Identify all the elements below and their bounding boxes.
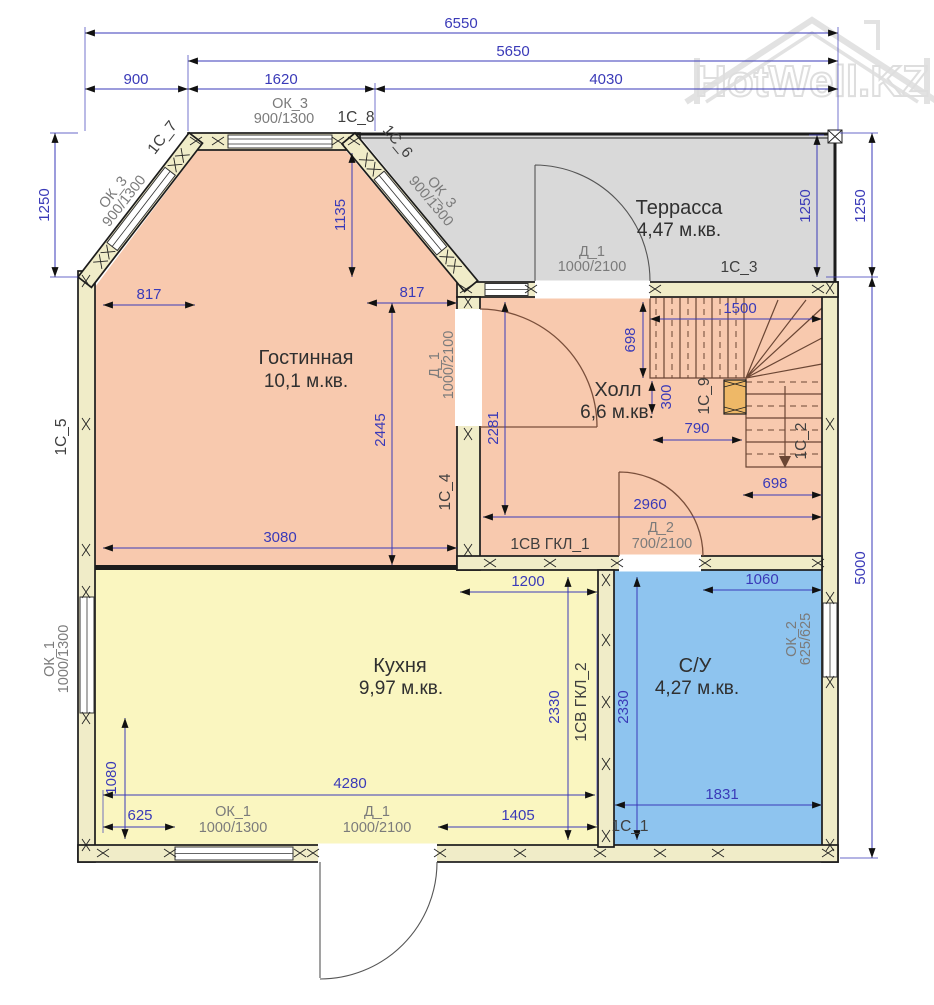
svg-text:1000/1300: 1000/1300 [56,625,72,694]
label-bath-area: 4,27 м.кв. [655,678,739,699]
dim-label-1831: 1831 [705,786,738,803]
watermark-text: HotWell.KZ [695,57,929,106]
wall-right [822,282,838,862]
label-d1-bottom-size: 1000/2100 [343,820,412,836]
label-kitchen-area: 9,97 м.кв. [359,678,443,699]
dim-label-1135: 1135 [332,199,349,231]
dim-label-2281: 2281 [485,411,502,444]
door-gap-terrace [535,281,650,299]
label-terrace-name: Террасса [636,197,724,219]
dim-label-300: 300 [658,384,675,409]
partition-kitchen-bath [598,570,614,847]
label-terrace-area: 4,47 м.кв. [637,220,721,241]
window-bottom-ok1 [175,847,293,860]
label-ok3-top-tag: ОК_3 [272,96,308,112]
label-panel-1c5: 1С_5 [53,418,70,455]
label-ok1-bottom-size: 1000/1300 [199,820,268,836]
label-panel-1c2: 1С_2 [793,422,810,459]
label-ok3-top-size: 900/1300 [254,111,314,127]
dim-label-698-bottom: 698 [762,475,787,492]
terrace-corner-post [828,130,842,143]
label-living-area: 10,1 м.кв. [264,371,348,392]
label-living-name: Гостинная [259,347,354,369]
label-ok1-left: ОК_1 1000/1300 [42,625,72,694]
dim-label-1620: 1620 [264,71,297,88]
label-ok1-bottom-tag: ОК_1 [215,804,251,820]
dim-label-6550: 6550 [444,15,477,32]
label-d1-terrace-size: 1000/2100 [558,259,627,275]
label-panel-gkl1: 1СВ ГКЛ_1 [510,536,589,553]
window-terrace-small [485,284,528,296]
door-gap-living-hall [455,309,482,426]
svg-text:625/625: 625/625 [798,613,814,665]
label-d1-bottom-tag: Д_1 [364,804,390,820]
dim-label-4280: 4280 [333,775,366,792]
label-hall-name: Холл [594,379,641,401]
label-panel-1c9: 1С_9 [696,377,713,414]
dim-label-1250-right: 1250 [852,189,869,222]
stair-newel-post [724,380,746,414]
dim-label-2330-kitchen: 2330 [546,690,563,723]
kitchen-floor [95,568,598,847]
label-kitchen-name: Кухня [373,655,427,677]
dim-label-3080: 3080 [263,529,296,546]
label-panel-1c3: 1С_3 [720,259,757,276]
floor-plan-drawing: HotWell.KZ [0,0,934,1000]
label-bath-name: С/У [679,655,712,677]
window-left-ok1 [80,597,94,713]
label-panel-1c1: 1С_1 [611,818,648,835]
door-swing-entry [320,862,437,979]
dim-label-4030: 4030 [589,71,622,88]
dim-label-1250-left: 1250 [36,188,53,221]
dim-label-698-top: 698 [622,327,639,352]
floor-plan-page: HotWell.KZ [0,0,934,1000]
partition-living-kitchen [95,565,457,570]
wall-left [78,271,95,862]
dim-label-5000: 5000 [852,551,869,584]
dim-label-1200: 1200 [511,573,544,590]
label-d1-terrace-tag: Д_1 [579,244,605,260]
watermark-chimney-icon [864,22,878,50]
dim-label-2445: 2445 [372,413,389,446]
door-gap-hall-d2 [619,555,701,572]
label-d2-tag: Д_2 [648,520,674,536]
dim-label-790: 790 [684,420,709,437]
label-d2-size: 700/2100 [632,536,692,552]
dim-label-625: 625 [127,807,152,824]
dim-label-2330-bath: 2330 [615,690,632,723]
label-panel-gkl2: 1СВ ГКЛ_2 [573,662,590,741]
dim-label-2960: 2960 [633,496,666,513]
dim-label-1500: 1500 [723,300,756,317]
dim-label-1250-terrace: 1250 [797,189,814,222]
dim-label-1405: 1405 [501,807,534,824]
door-gap-entry [318,844,437,864]
label-panel-1c4: 1С_4 [437,473,454,510]
dim-label-817-right: 817 [399,284,424,301]
label-panel-1c8: 1С_8 [337,109,374,126]
window-right-ok2 [823,603,837,677]
dim-label-5650: 5650 [496,43,529,60]
dim-label-1060: 1060 [745,571,778,588]
svg-text:1000/2100: 1000/2100 [441,331,457,400]
dim-label-1080: 1080 [103,761,120,794]
dim-label-817-left: 817 [136,286,161,303]
label-hall-area: 6,6 м.кв. [580,402,654,423]
window-top-ok3 [228,135,332,148]
dim-label-900: 900 [123,71,148,88]
